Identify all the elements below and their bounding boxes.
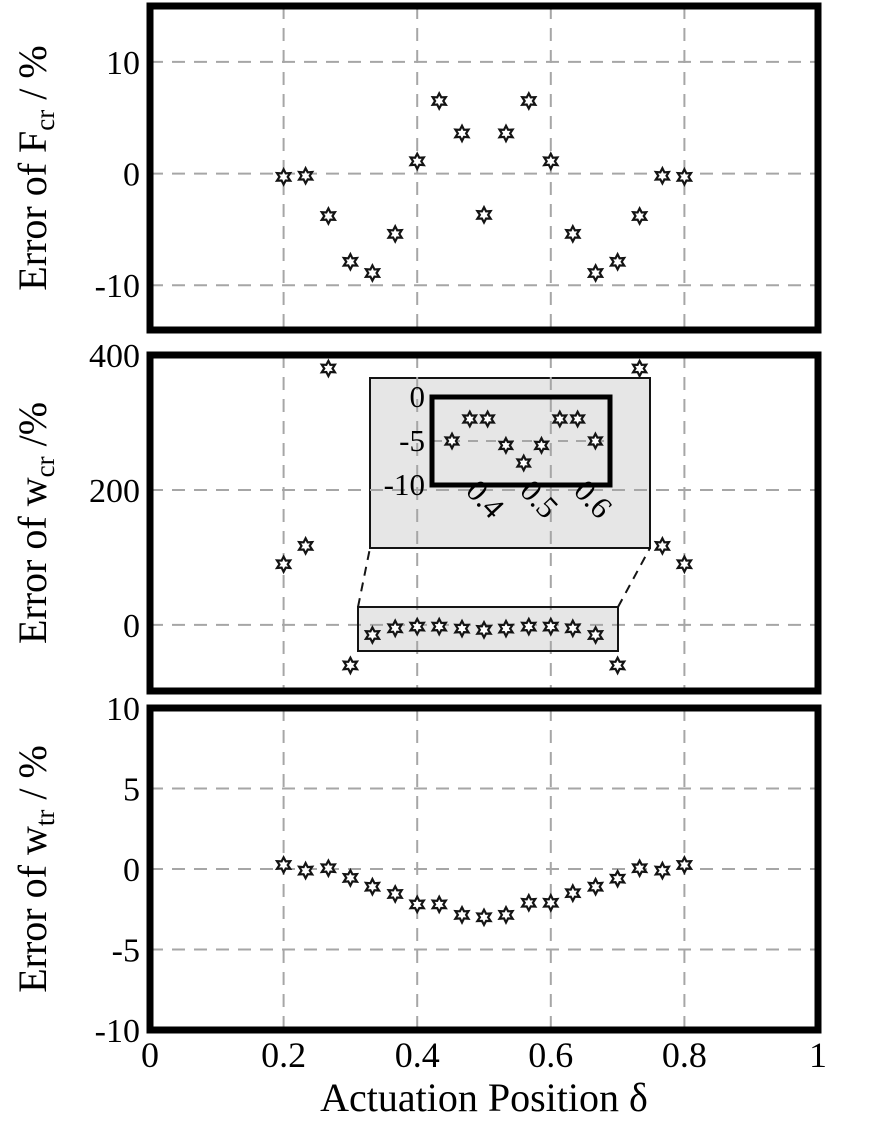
y-tick-label: 0 — [123, 608, 140, 645]
data-point-star-icon — [455, 907, 468, 922]
data-point-star-icon — [611, 254, 624, 269]
plot-error-fcr: 100-10Error of Fcr / % — [10, 6, 818, 330]
data-point-star-icon — [366, 879, 379, 894]
data-point-star-icon — [566, 886, 579, 901]
y-tick-label: 400 — [89, 338, 140, 375]
data-point-star-icon — [656, 863, 669, 878]
y-tick-label: -10 — [95, 268, 140, 305]
data-point-star-icon — [299, 863, 312, 878]
data-point-star-icon — [389, 886, 402, 901]
plot-border — [150, 6, 818, 330]
zoom-connector-line — [358, 548, 370, 607]
y-tick-label: -10 — [95, 1013, 140, 1050]
data-point-star-icon — [433, 93, 446, 108]
x-tick-label: 0 — [141, 1035, 159, 1075]
data-point-star-icon — [500, 126, 513, 141]
data-point-star-icon — [678, 557, 691, 572]
x-tick-label: 0.6 — [528, 1035, 573, 1075]
data-point-star-icon — [633, 361, 646, 376]
data-point-star-icon — [678, 169, 691, 184]
x-tick-label: 0.4 — [395, 1035, 440, 1075]
y-tick-label: 0 — [123, 156, 140, 193]
inset-y-tick-label: -10 — [384, 467, 425, 502]
y-tick-label: 10 — [106, 45, 140, 82]
figure: 100-10Error of Fcr / % 0-5-100.40.50.640… — [0, 0, 882, 1134]
data-point-star-icon — [344, 870, 357, 885]
x-tick-label: 1 — [809, 1035, 827, 1075]
data-point-star-icon — [678, 857, 691, 872]
data-point-star-icon — [299, 538, 312, 553]
x-axis-label: Actuation Position δ — [320, 1075, 648, 1120]
data-point-star-icon — [322, 861, 335, 876]
data-point-star-icon — [366, 265, 379, 280]
data-point-star-icon — [299, 168, 312, 183]
x-tick-label: 0.2 — [261, 1035, 306, 1075]
data-point-star-icon — [522, 895, 535, 910]
data-point-star-icon — [522, 93, 535, 108]
y-axis-label: Error of wcr /% — [10, 402, 60, 644]
x-tick-label: 0.8 — [662, 1035, 707, 1075]
figure-canvas: 100-10Error of Fcr / % 0-5-100.40.50.640… — [0, 0, 882, 1134]
data-point-star-icon — [544, 895, 557, 910]
y-tick-label: 0 — [123, 852, 140, 889]
data-point-star-icon — [544, 154, 557, 169]
y-tick-label: -5 — [112, 932, 140, 969]
plot-error-wcr: 0-5-100.40.50.64002000Error of wcr /% — [10, 338, 818, 691]
data-point-star-icon — [611, 658, 624, 673]
data-point-star-icon — [322, 361, 335, 376]
zoom-connector-line — [618, 548, 650, 607]
data-point-star-icon — [344, 658, 357, 673]
y-axis-label: Error of wtr / % — [10, 745, 60, 993]
data-point-star-icon — [322, 208, 335, 223]
data-point-star-icon — [633, 861, 646, 876]
data-point-star-icon — [455, 126, 468, 141]
y-tick-label: 5 — [123, 771, 140, 808]
data-point-star-icon — [656, 538, 669, 553]
data-point-star-icon — [500, 907, 513, 922]
data-point-star-icon — [277, 169, 290, 184]
data-point-star-icon — [389, 226, 402, 241]
inset-y-tick-label: -5 — [399, 423, 425, 458]
data-point-star-icon — [411, 897, 424, 912]
data-point-star-icon — [589, 265, 602, 280]
data-point-star-icon — [344, 254, 357, 269]
data-point-star-icon — [566, 226, 579, 241]
data-point-star-icon — [277, 557, 290, 572]
y-axis-label: Error of Fcr / % — [10, 45, 60, 290]
data-point-star-icon — [411, 154, 424, 169]
y-tick-label: 10 — [106, 691, 140, 728]
data-point-star-icon — [656, 168, 669, 183]
data-point-star-icon — [589, 879, 602, 894]
data-point-star-icon — [277, 857, 290, 872]
plot-error-wtr: 1050-5-10Error of wtr / %00.20.40.60.81 — [10, 691, 827, 1075]
data-point-star-icon — [433, 897, 446, 912]
data-point-star-icon — [477, 910, 490, 925]
inset-y-tick-label: 0 — [410, 379, 426, 414]
data-point-star-icon — [611, 871, 624, 886]
data-point-star-icon — [633, 208, 646, 223]
data-point-star-icon — [477, 207, 490, 222]
y-tick-label: 200 — [89, 473, 140, 510]
